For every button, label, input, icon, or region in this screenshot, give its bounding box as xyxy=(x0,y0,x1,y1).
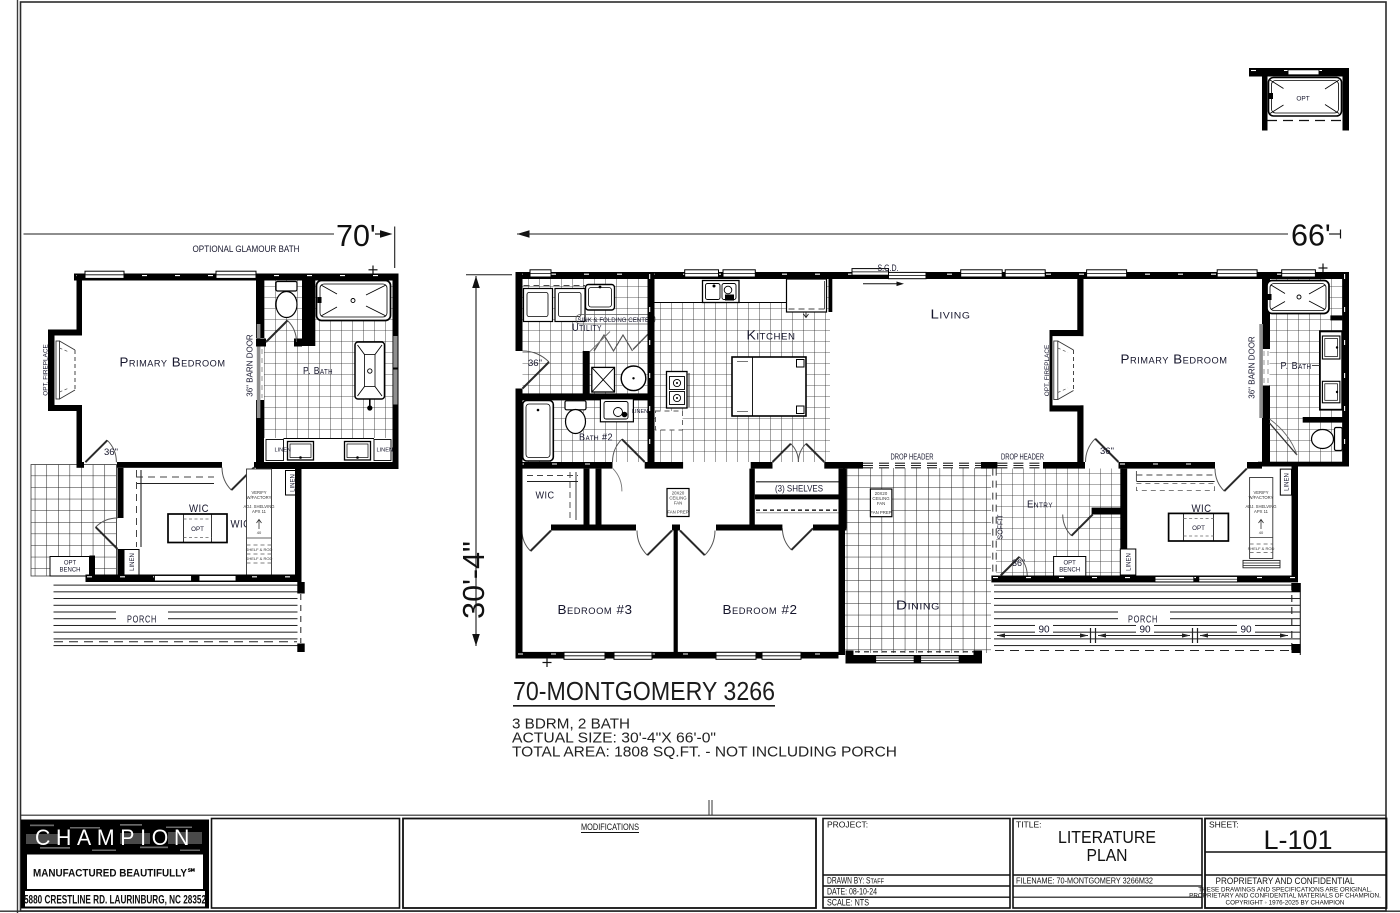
svg-text:40: 40 xyxy=(1259,530,1264,535)
svg-text:36": 36" xyxy=(528,358,542,369)
svg-text:SHELF & ROD: SHELF & ROD xyxy=(246,556,273,561)
svg-text:TOTAL AREA: 1808 SQ.FT. - NOT: TOTAL AREA: 1808 SQ.FT. - NOT INCLUDING … xyxy=(512,744,897,761)
svg-text:APX 11: APX 11 xyxy=(252,509,267,514)
svg-text:LINEN: LINEN xyxy=(1285,473,1291,491)
svg-text:FAN PREP: FAN PREP xyxy=(667,510,688,515)
svg-text:CHAMPION: CHAMPION xyxy=(35,825,195,850)
svg-text:MODIFICATIONS: MODIFICATIONS xyxy=(581,822,639,833)
svg-text:OPT: OPT xyxy=(1296,96,1309,103)
svg-text:90: 90 xyxy=(1038,625,1050,636)
svg-text:P. Bath: P. Bath xyxy=(303,366,333,377)
svg-text:LINEN: LINEN xyxy=(632,409,648,415)
svg-text:SHELF & ROD: SHELF & ROD xyxy=(246,547,273,552)
svg-text:Entry: Entry xyxy=(1027,499,1053,511)
svg-text:Bedroom #2: Bedroom #2 xyxy=(723,602,798,617)
svg-text:LINEN: LINEN xyxy=(130,553,136,571)
svg-text:OPT: OPT xyxy=(64,561,77,567)
svg-text:Living: Living xyxy=(931,307,971,322)
svg-text:L-101: L-101 xyxy=(1263,825,1332,855)
svg-text:66': 66' xyxy=(1291,219,1331,253)
svg-text:SHELF & ROD: SHELF & ROD xyxy=(1248,546,1275,551)
svg-text:PLAN: PLAN xyxy=(1087,845,1128,865)
svg-text:W/FACTORY: W/FACTORY xyxy=(247,495,272,500)
svg-text:PROJECT:: PROJECT: xyxy=(827,820,868,830)
svg-text:Utility: Utility xyxy=(572,322,602,334)
svg-text:OPT. FIREPLACE: OPT. FIREPLACE xyxy=(43,344,50,396)
svg-text:DROP HEADER: DROP HEADER xyxy=(891,453,934,462)
svg-text:DROP HEADER: DROP HEADER xyxy=(1001,453,1044,462)
svg-text:36": 36" xyxy=(1012,558,1025,568)
svg-text:70': 70' xyxy=(336,219,376,253)
svg-text:TITLE:: TITLE: xyxy=(1016,820,1042,830)
svg-text:COPYRIGHT ◦ 1976-2025 BY CHAMP: COPYRIGHT ◦ 1976-2025 BY CHAMPION xyxy=(1226,900,1345,907)
svg-text:SCALE: NTS: SCALE: NTS xyxy=(827,898,869,908)
svg-text:FAN: FAN xyxy=(674,501,682,506)
svg-text:MANUFACTURED BEAUTIFULLY℠: MANUFACTURED BEAUTIFULLY℠ xyxy=(33,868,197,880)
svg-text:30'-4": 30'-4" xyxy=(457,541,491,619)
svg-text:Bedroom #3: Bedroom #3 xyxy=(558,602,633,617)
svg-text:40: 40 xyxy=(257,530,262,535)
svg-text:PORCH: PORCH xyxy=(127,614,157,626)
svg-text:Primary Bedroom: Primary Bedroom xyxy=(120,355,226,370)
svg-text:36": 36" xyxy=(104,447,118,458)
svg-text:Primary Bedroom: Primary Bedroom xyxy=(1121,352,1228,367)
svg-text:LITERATURE: LITERATURE xyxy=(1058,827,1156,847)
svg-text:Bath #2: Bath #2 xyxy=(579,433,613,444)
svg-text:OPT: OPT xyxy=(191,526,204,533)
svg-text:PROPRIETARY AND CONFIDENTIAL M: PROPRIETARY AND CONFIDENTIAL MATERIALS O… xyxy=(1189,893,1381,900)
svg-text:SHEET:: SHEET: xyxy=(1209,820,1239,830)
svg-text:BENCH: BENCH xyxy=(59,568,80,574)
svg-text:S.G.D.: S.G.D. xyxy=(878,263,899,273)
svg-text:36" BARN DOOR: 36" BARN DOOR xyxy=(1248,336,1257,399)
svg-text:OPTIONAL GLAMOUR BATH: OPTIONAL GLAMOUR BATH xyxy=(193,243,300,254)
svg-text:90: 90 xyxy=(1240,625,1252,636)
svg-text:36": 36" xyxy=(1100,446,1114,457)
svg-text:36" BARN DOOR: 36" BARN DOOR xyxy=(246,334,255,397)
svg-text:LINEN: LINEN xyxy=(1127,553,1133,571)
svg-text:OPT: OPT xyxy=(1064,561,1077,567)
svg-text:FAN PREP: FAN PREP xyxy=(870,510,891,515)
svg-text:FAN: FAN xyxy=(877,501,885,506)
svg-text:70-MONTGOMERY 3266: 70-MONTGOMERY 3266 xyxy=(513,676,775,706)
svg-text:SOFFIT: SOFFIT xyxy=(998,514,1005,540)
svg-text:LINEN: LINEN xyxy=(377,448,393,454)
svg-text:Kitchen: Kitchen xyxy=(747,328,796,343)
svg-text:(3) SHELVES: (3) SHELVES xyxy=(775,484,823,494)
svg-text:PROPRIETARY AND CONFIDENTIAL: PROPRIETARY AND CONFIDENTIAL xyxy=(1216,876,1355,886)
svg-text:5880 CRESTLINE RD. LAURINBURG: 5880 CRESTLINE RD. LAURINBURG, NC 28352 xyxy=(24,893,206,907)
svg-text:DRAWN BY: STAFF: DRAWN BY: STAFF xyxy=(827,876,884,886)
svg-text:BENCH: BENCH xyxy=(1059,568,1080,574)
svg-text:DATE: 08-10-24: DATE: 08-10-24 xyxy=(827,887,877,897)
svg-text:WIC: WIC xyxy=(536,490,555,502)
svg-text:APX 11: APX 11 xyxy=(1254,509,1269,514)
svg-text:P. Bath: P. Bath xyxy=(1281,361,1312,372)
svg-text:OPT. FIREPLACE: OPT. FIREPLACE xyxy=(1044,345,1051,397)
svg-text:Dining: Dining xyxy=(896,598,940,613)
svg-text:OPT: OPT xyxy=(1192,525,1205,532)
svg-text:90: 90 xyxy=(1139,625,1151,636)
svg-text:FILENAME: 70-MONTGOMERY 3266M3: FILENAME: 70-MONTGOMERY 3266M32 xyxy=(1016,876,1153,886)
svg-text:LINEN: LINEN xyxy=(275,448,291,454)
svg-text:W/FACTORY: W/FACTORY xyxy=(1249,495,1274,500)
